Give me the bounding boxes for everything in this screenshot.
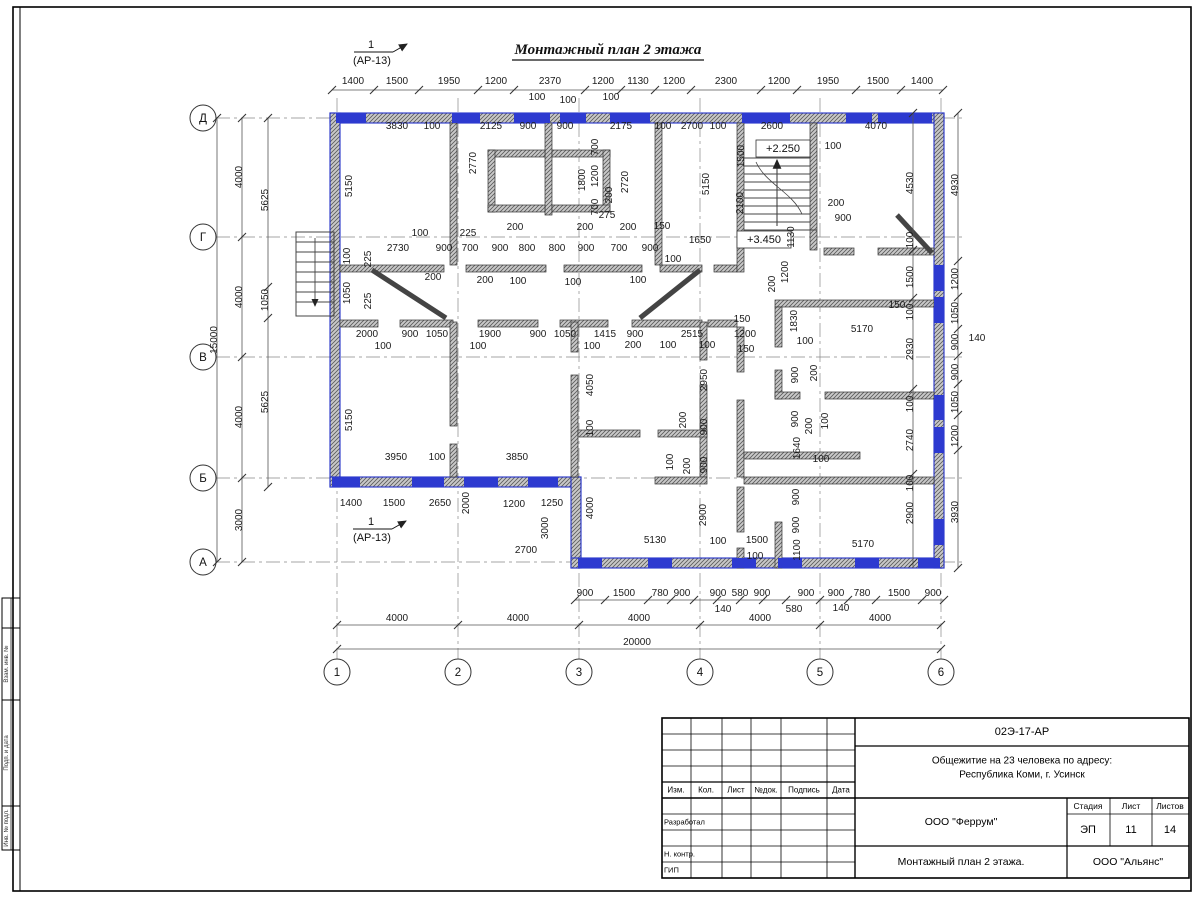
dim-label: 200 bbox=[507, 222, 524, 233]
dim-label: 1250 bbox=[541, 498, 564, 509]
dim-label: 2000 bbox=[356, 329, 379, 340]
staircase bbox=[744, 158, 817, 230]
section-marker-top: 1 (АР-13) bbox=[353, 39, 407, 67]
dim-label: 900 bbox=[627, 329, 644, 340]
dim-label: 200 bbox=[767, 275, 778, 292]
dim-label: 2720 bbox=[620, 170, 631, 193]
dim-label: 100 bbox=[630, 275, 647, 286]
axis-bubble-label: Д bbox=[199, 113, 207, 125]
dim-label: 4000 bbox=[869, 613, 892, 624]
dim-label: 900 bbox=[790, 366, 801, 383]
dim-label: 4000 bbox=[386, 613, 409, 624]
dim-label: 100 bbox=[747, 551, 764, 562]
axis-bubble-label: Г bbox=[200, 232, 207, 244]
dim-label: 100 bbox=[905, 231, 916, 248]
dim-label: 200 bbox=[809, 364, 820, 381]
dim-label: 5150 bbox=[344, 174, 355, 197]
dim-label: 4000 bbox=[507, 613, 530, 624]
margin-stamp-label: Взам. инв. № bbox=[3, 645, 10, 682]
dim-label: 2100 bbox=[735, 191, 746, 214]
dim-label: 100 bbox=[529, 92, 546, 103]
dim-label: 1400 bbox=[340, 498, 363, 509]
dim-label: 100 bbox=[710, 121, 727, 132]
svg-text:+2.250: +2.250 bbox=[766, 143, 800, 155]
dim-label: 1950 bbox=[438, 76, 461, 87]
dim-label: 900 bbox=[791, 488, 802, 505]
plan-title-text: Монтажный план 2 этажа bbox=[514, 42, 702, 58]
dim-label: 200 bbox=[828, 198, 845, 209]
project-name-line2: Республика Коми, г. Усинск bbox=[959, 770, 1085, 781]
dim-label: 100 bbox=[655, 121, 672, 132]
dim-label: 800 bbox=[519, 243, 536, 254]
dim-label: 5625 bbox=[260, 188, 271, 211]
section-marker-bottom: 1 (АР-13) bbox=[353, 516, 406, 544]
dim-label: 1500 bbox=[888, 588, 911, 599]
stage-value: ЭП bbox=[1080, 824, 1096, 836]
dim-label: 3850 bbox=[506, 452, 529, 463]
dim-label: 100 bbox=[375, 341, 392, 352]
axis-bubble-label: 2 bbox=[455, 667, 461, 679]
dim-label: 100 bbox=[560, 95, 577, 106]
dim-label: 100 bbox=[813, 454, 830, 465]
dim-label: 2300 bbox=[715, 76, 738, 87]
project-name-line1: Общежитие на 23 человека по адресу: bbox=[932, 756, 1112, 767]
entrance-stair bbox=[296, 232, 334, 316]
dim-label: 1200 bbox=[663, 76, 686, 87]
sheet-title: Монтажный план 2 этажа. bbox=[898, 856, 1025, 868]
dim-label: 4530 bbox=[905, 171, 916, 194]
dim-label: 4930 bbox=[950, 173, 961, 196]
dim-label: 900 bbox=[798, 588, 815, 599]
dim-label: 1800 bbox=[577, 168, 588, 191]
doc-code: 02Э-17-АР bbox=[995, 726, 1049, 738]
dim-label: 4000 bbox=[628, 613, 651, 624]
dim-label: 225 bbox=[460, 228, 477, 239]
dim-label: 4000 bbox=[234, 165, 245, 188]
dim-label: 5150 bbox=[344, 408, 355, 431]
svg-text:1: 1 bbox=[368, 39, 374, 51]
col-data: Дата bbox=[832, 786, 850, 795]
col-izm: Изм. bbox=[667, 786, 684, 795]
dim-label: 900 bbox=[699, 418, 710, 435]
dim-label: 150 bbox=[738, 344, 755, 355]
axis-bubble-label: 6 bbox=[938, 667, 944, 679]
dim-label: 900 bbox=[791, 516, 802, 533]
dim-label: 150 bbox=[654, 221, 671, 232]
sheet-number: 11 bbox=[1125, 824, 1136, 836]
dim-label: 150 bbox=[889, 300, 906, 311]
dim-label: 1640 bbox=[792, 436, 803, 459]
dim-label: 100 bbox=[603, 92, 620, 103]
dim-label: 140 bbox=[833, 603, 850, 614]
dim-label: 200 bbox=[604, 186, 615, 203]
dim-label: 780 bbox=[652, 588, 669, 599]
dim-label: 100 bbox=[905, 474, 916, 491]
dim-label: 2000 bbox=[461, 491, 472, 514]
dim-label: 900 bbox=[754, 588, 771, 599]
axis-bubble-label: Б bbox=[199, 473, 207, 485]
dim-label: 800 bbox=[549, 243, 566, 254]
dim-label: 3000 bbox=[234, 508, 245, 531]
dim-label: 1050 bbox=[950, 301, 961, 324]
axis-bubble-label: 4 bbox=[697, 667, 704, 679]
svg-text:(АР-13): (АР-13) bbox=[353, 55, 391, 67]
margin-stamp-table: Взам. инв. № Подп. и дата Инв. № подл. bbox=[2, 598, 20, 850]
dim-label: 100 bbox=[797, 336, 814, 347]
dim-label: 4000 bbox=[585, 496, 596, 519]
axis-bubble-label: 5 bbox=[817, 667, 823, 679]
dim-label: 900 bbox=[950, 333, 961, 350]
dim-label: 20000 bbox=[623, 637, 651, 648]
dim-label: 2730 bbox=[387, 243, 410, 254]
dim-label: 900 bbox=[402, 329, 419, 340]
dim-label: 1200 bbox=[590, 164, 601, 187]
dim-label: 3830 bbox=[386, 121, 409, 132]
dim-label: 15000 bbox=[209, 326, 220, 354]
dim-label: 1050 bbox=[950, 390, 961, 413]
dim-label: 900 bbox=[699, 456, 710, 473]
dim-label: 900 bbox=[577, 588, 594, 599]
dim-label: 100 bbox=[905, 303, 916, 320]
margin-stamp-label: Инв. № подл. bbox=[3, 809, 10, 847]
dim-label: 100 bbox=[660, 340, 677, 351]
dim-label: 900 bbox=[436, 243, 453, 254]
dim-label: 4050 bbox=[585, 373, 596, 396]
dim-label: 140 bbox=[715, 604, 732, 615]
dim-label: 900 bbox=[790, 410, 801, 427]
contractor-name: ООО "Феррум" bbox=[925, 816, 998, 828]
dim-label: 200 bbox=[620, 222, 637, 233]
title-block bbox=[662, 718, 1189, 878]
dim-label: 5130 bbox=[644, 535, 667, 546]
dim-label: 100 bbox=[710, 536, 727, 547]
dim-label: 2650 bbox=[429, 498, 452, 509]
level-mark-stair: +2.250 bbox=[756, 140, 810, 157]
dim-label: 580 bbox=[786, 604, 803, 615]
dim-label: 1650 bbox=[689, 235, 712, 246]
dim-label: 1500 bbox=[383, 498, 406, 509]
dim-label: 200 bbox=[425, 272, 442, 283]
dim-label: 1500 bbox=[613, 588, 636, 599]
dim-label: 100 bbox=[342, 247, 353, 264]
dim-label: 900 bbox=[950, 363, 961, 380]
dim-label: 100 bbox=[905, 395, 916, 412]
dim-label: 225 bbox=[363, 250, 374, 267]
dim-label: 100 bbox=[412, 228, 429, 239]
dim-label: 200 bbox=[804, 417, 815, 434]
dim-label: 5170 bbox=[851, 324, 874, 335]
dim-label: 1500 bbox=[867, 76, 890, 87]
dim-label: 1050 bbox=[426, 329, 449, 340]
col-list: Лист bbox=[727, 786, 744, 795]
dim-label: 225 bbox=[363, 292, 374, 309]
dim-label: 900 bbox=[835, 213, 852, 224]
dim-label: 780 bbox=[854, 588, 871, 599]
col-kol: Кол. bbox=[698, 786, 714, 795]
sheet-label: Лист bbox=[1122, 801, 1140, 811]
dim-label: 900 bbox=[578, 243, 595, 254]
sheets-label: Листов bbox=[1156, 801, 1184, 811]
dim-label: 100 bbox=[510, 276, 527, 287]
dim-label: 275 bbox=[599, 210, 616, 221]
dim-label: 1400 bbox=[342, 76, 365, 87]
dim-label: 2900 bbox=[698, 503, 709, 526]
dim-label: 900 bbox=[925, 588, 942, 599]
drawing-sheet: Взам. инв. № Подп. и дата Инв. № подл. 1… bbox=[0, 0, 1200, 900]
dim-label: 700 bbox=[462, 243, 479, 254]
dim-label: 900 bbox=[674, 588, 691, 599]
dim-label: 2515 bbox=[681, 329, 704, 340]
dim-label: 100 bbox=[825, 141, 842, 152]
dim-label: 100 bbox=[820, 412, 831, 429]
dim-label: 1200 bbox=[950, 424, 961, 447]
dim-label: 2950 bbox=[699, 368, 710, 391]
dim-label: 200 bbox=[625, 340, 642, 351]
dim-label: 1400 bbox=[911, 76, 934, 87]
dim-label: 900 bbox=[642, 243, 659, 254]
axis-bubble-label: В bbox=[199, 352, 207, 364]
dim-label: 2700 bbox=[681, 121, 704, 132]
dim-label: 150 bbox=[734, 314, 751, 325]
dim-label: 3950 bbox=[385, 452, 408, 463]
dim-label: 100 bbox=[584, 341, 601, 352]
dim-label: 2930 bbox=[905, 337, 916, 360]
dim-label: 4000 bbox=[234, 285, 245, 308]
stage-label: Стадия bbox=[1074, 801, 1103, 811]
dim-label: 1100 bbox=[792, 539, 803, 561]
dim-label: 200 bbox=[682, 457, 693, 474]
dim-label: 900 bbox=[828, 588, 845, 599]
dim-label: 1900 bbox=[479, 329, 502, 340]
axis-bubble-label: А bbox=[199, 557, 207, 569]
dim-label: 1950 bbox=[817, 76, 840, 87]
dim-label: 2175 bbox=[610, 121, 633, 132]
svg-text:+3.450: +3.450 bbox=[747, 234, 781, 246]
dim-label: 4000 bbox=[234, 405, 245, 428]
dim-label: 5150 bbox=[701, 172, 712, 195]
dim-label: 200 bbox=[577, 222, 594, 233]
col-ndok: №док. bbox=[754, 786, 777, 795]
margin-stamp-label: Подп. и дата bbox=[4, 735, 10, 771]
dim-label: 4000 bbox=[749, 613, 772, 624]
dim-label: 700 bbox=[590, 138, 601, 155]
dim-label: 1200 bbox=[485, 76, 508, 87]
dim-label: 700 bbox=[611, 243, 628, 254]
dim-label: 2370 bbox=[539, 76, 562, 87]
dim-label: 1200 bbox=[950, 267, 961, 290]
dim-label: 1200 bbox=[592, 76, 615, 87]
dim-label: 2740 bbox=[905, 428, 916, 451]
dim-label: 900 bbox=[520, 121, 537, 132]
col-podpis: Подпись bbox=[788, 786, 820, 795]
dim-label: 100 bbox=[699, 340, 716, 351]
dim-label: 2600 bbox=[761, 121, 784, 132]
dim-label: 1500 bbox=[386, 76, 409, 87]
dim-label: 100 bbox=[585, 419, 596, 436]
dim-label: 1130 bbox=[786, 226, 797, 248]
dim-label: 1500 bbox=[905, 265, 916, 288]
dim-label: 2700 bbox=[515, 545, 538, 556]
svg-text:(АР-13): (АР-13) bbox=[353, 532, 391, 544]
dim-label: 1500 bbox=[746, 535, 769, 546]
dim-label: 100 bbox=[424, 121, 441, 132]
dim-label: 100 bbox=[665, 254, 682, 265]
role-gip: ГИП bbox=[664, 866, 679, 875]
axis-bubble-label: 3 bbox=[576, 667, 582, 679]
axis-bubble-label: 1 bbox=[334, 667, 340, 679]
dim-label: 5625 bbox=[260, 390, 271, 413]
level-mark-mid: +3.450 bbox=[737, 231, 791, 248]
dim-label: 900 bbox=[492, 243, 509, 254]
dim-label: 100 bbox=[429, 452, 446, 463]
dim-label: 200 bbox=[678, 411, 689, 428]
dim-label: 2770 bbox=[468, 151, 479, 174]
dim-label: 1200 bbox=[780, 260, 791, 283]
dim-label: 2900 bbox=[905, 501, 916, 524]
dim-label: 900 bbox=[557, 121, 574, 132]
dim-label: 1050 bbox=[554, 329, 577, 340]
role-developer: Разработал bbox=[664, 818, 705, 827]
dim-label: 900 bbox=[530, 329, 547, 340]
dim-label: 3930 bbox=[950, 500, 961, 523]
dim-label: 1830 bbox=[789, 309, 800, 332]
dim-label: 1500 bbox=[736, 144, 747, 167]
dim-label: 1050 bbox=[260, 288, 271, 311]
company-name: ООО "Альянс" bbox=[1093, 856, 1163, 868]
dim-label: 1200 bbox=[503, 499, 526, 510]
dim-label: 1200 bbox=[734, 329, 757, 340]
dim-label: 2125 bbox=[480, 121, 503, 132]
dim-label: 100 bbox=[565, 277, 582, 288]
dim-label: 3000 bbox=[540, 516, 551, 539]
dim-label: 200 bbox=[477, 275, 494, 286]
plan-title: Монтажный план 2 этажа bbox=[512, 42, 704, 60]
dim-label: 100 bbox=[665, 453, 676, 470]
sheets-total: 14 bbox=[1164, 824, 1176, 836]
dim-label: 1200 bbox=[768, 76, 791, 87]
role-ncontrol: Н. контр. bbox=[664, 850, 695, 859]
dim-label: 140 bbox=[969, 333, 986, 344]
dim-label: 1415 bbox=[594, 329, 617, 340]
dim-label: 1050 bbox=[342, 281, 353, 304]
dim-label: 5170 bbox=[852, 539, 875, 550]
dim-label: 1130 bbox=[627, 76, 649, 87]
svg-text:1: 1 bbox=[368, 516, 374, 528]
dim-label: 900 bbox=[710, 588, 727, 599]
dim-label: 4070 bbox=[865, 121, 888, 132]
dim-label: 580 bbox=[732, 588, 749, 599]
dim-label: 100 bbox=[470, 341, 487, 352]
